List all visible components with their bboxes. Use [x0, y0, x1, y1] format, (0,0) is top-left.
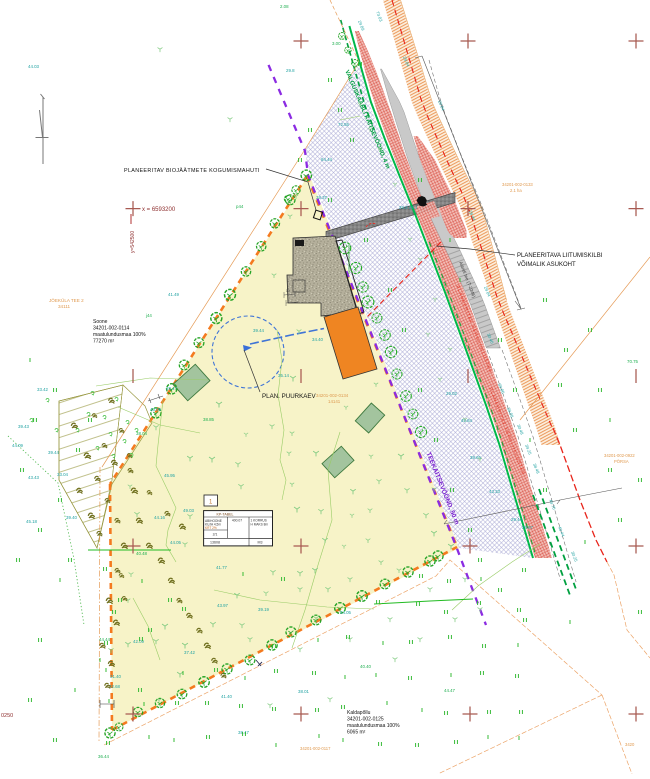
svg-text:43.33: 43.33: [489, 489, 501, 494]
svg-text:28.47: 28.47: [166, 386, 178, 391]
svg-text:37.42: 37.42: [184, 650, 196, 655]
svg-text:y=542500: y=542500: [130, 231, 136, 253]
svg-text:29.02: 29.02: [446, 391, 458, 396]
svg-text:34201-002-0125: 34201-002-0125: [347, 717, 384, 723]
svg-text:44.09: 44.09: [12, 443, 24, 448]
svg-text:72.55: 72.55: [338, 122, 350, 127]
svg-text:39.37: 39.37: [316, 195, 328, 200]
svg-text:6065 m²: 6065 m²: [347, 730, 366, 736]
svg-text:29.87: 29.87: [522, 525, 534, 530]
svg-text:44.16: 44.16: [154, 515, 166, 520]
svg-text:39.40: 39.40: [66, 515, 78, 520]
svg-text:49.84: 49.84: [461, 418, 473, 423]
svg-text:38.85: 38.85: [203, 417, 215, 422]
svg-text:39.19: 39.19: [258, 607, 270, 612]
svg-text:PLANEERITAV BIOJÄÄTMETE KOGUMI: PLANEERITAV BIOJÄÄTMETE KOGUMISMAHUTI: [124, 167, 260, 174]
svg-text:33.42: 33.42: [37, 387, 49, 392]
svg-text:34201-002-0922: 34201-002-0922: [604, 453, 635, 458]
svg-text:44.03: 44.03: [28, 64, 40, 69]
svg-text:29.44: 29.44: [511, 517, 523, 522]
svg-text:39.44: 39.44: [48, 450, 60, 455]
svg-text:41.40: 41.40: [221, 694, 233, 699]
svg-text:3.00: 3.00: [332, 41, 341, 46]
svg-text:H MAKS 8m: H MAKS 8m: [251, 523, 269, 527]
svg-text:3420: 3420: [625, 742, 635, 747]
svg-text:44.05: 44.05: [170, 540, 182, 545]
svg-text:Soone: Soone: [93, 319, 108, 325]
svg-text:43.09: 43.09: [150, 407, 162, 412]
svg-text:13608: 13608: [210, 541, 220, 545]
svg-text:39.44: 39.44: [253, 328, 265, 333]
svg-text:35.14: 35.14: [278, 373, 290, 378]
svg-text:33.04: 33.04: [57, 472, 69, 477]
svg-text:38.04: 38.04: [136, 431, 148, 436]
svg-text:38.01: 38.01: [298, 689, 310, 694]
svg-text:34111: 34111: [58, 304, 71, 309]
svg-text:84.44: 84.44: [321, 157, 333, 162]
svg-text:70.75: 70.75: [627, 359, 639, 364]
svg-text:40.40: 40.40: [360, 664, 372, 669]
svg-text:39.43: 39.43: [18, 424, 30, 429]
svg-text:j44: j44: [145, 313, 152, 318]
svg-text:p44: p44: [236, 204, 244, 209]
svg-text:77270 m²: 77270 m²: [93, 339, 114, 345]
svg-text:45.18: 45.18: [26, 519, 38, 524]
svg-text:38.47: 38.47: [238, 730, 250, 735]
svg-text:34.40: 34.40: [312, 337, 324, 342]
svg-text:43.43: 43.43: [28, 475, 40, 480]
svg-text:M3: M3: [258, 541, 263, 545]
svg-text:41.77: 41.77: [216, 565, 228, 570]
svg-text:PÕRSA: PÕRSA: [614, 459, 629, 464]
svg-text:29.8: 29.8: [286, 68, 295, 73]
svg-text:36.44: 36.44: [98, 754, 110, 759]
svg-text:PLAN. PUURKAEV: PLAN. PUURKAEV: [262, 393, 317, 400]
svg-text:14141: 14141: [328, 399, 341, 404]
svg-text:PLANEERITAVA LIITUMISKILBI: PLANEERITAVA LIITUMISKILBI: [517, 253, 603, 259]
svg-text:maatulundusmaa 100%: maatulundusmaa 100%: [93, 332, 146, 338]
svg-text:34201-002-0114: 34201-002-0114: [93, 326, 130, 332]
svg-text:41.49: 41.49: [168, 292, 180, 297]
svg-text:10: 10: [286, 289, 290, 293]
svg-text:34201-002-0133: 34201-002-0133: [502, 182, 533, 187]
svg-text:2/1: 2/1: [213, 533, 218, 537]
svg-text:43.97: 43.97: [217, 603, 229, 608]
svg-text:40.48: 40.48: [136, 551, 148, 556]
svg-text:29.8 29.4: 29.8 29.4: [399, 205, 418, 210]
svg-text:KRT 2%: KRT 2%: [205, 526, 217, 530]
svg-text:34201-002-0134: 34201-002-0134: [316, 393, 349, 398]
svg-text:44.05: 44.05: [340, 610, 352, 615]
svg-text:44.47: 44.47: [444, 688, 456, 693]
svg-text:31.40: 31.40: [110, 674, 122, 679]
svg-text:0250: 0250: [1, 713, 13, 719]
svg-text:45.95: 45.95: [164, 473, 176, 478]
svg-text:JÕEKÜLA TEE 2: JÕEKÜLA TEE 2: [49, 297, 84, 303]
svg-text:400.07: 400.07: [232, 519, 242, 523]
svg-text:maatulundusmaa 100%: maatulundusmaa 100%: [347, 723, 400, 729]
svg-text:VÕIMALIK ASUKOHT: VÕIMALIK ASUKOHT: [517, 261, 576, 268]
svg-text:Kaldapõllu: Kaldapõllu: [347, 710, 371, 716]
svg-text:2.1 ha: 2.1 ha: [510, 188, 522, 193]
svg-text:49.03: 49.03: [183, 508, 195, 513]
svg-text:KP-TABEL: KP-TABEL: [216, 513, 233, 517]
svg-text:x = 6593200: x = 6593200: [142, 207, 176, 213]
svg-text:34201-002-0117: 34201-002-0117: [300, 746, 331, 751]
svg-text:2.08: 2.08: [280, 4, 289, 9]
